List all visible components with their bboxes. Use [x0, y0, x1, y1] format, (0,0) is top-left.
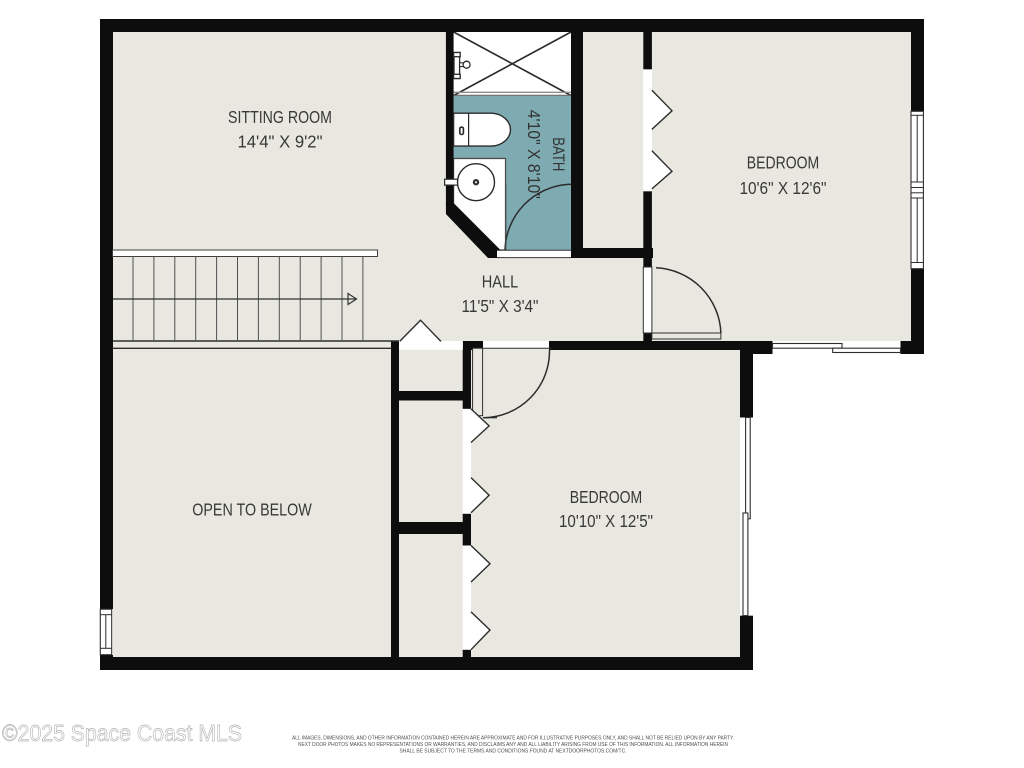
svg-text:SHALL BE SUBJECT TO THE TERMS: SHALL BE SUBJECT TO THE TERMS AND CONDIT… [400, 749, 627, 755]
svg-text:BATH: BATH [549, 137, 567, 171]
svg-text:©2025 Space Coast MLS: ©2025 Space Coast MLS [2, 720, 242, 746]
svg-text:NEXT DOOR PHOTOS MAKES NO REPR: NEXT DOOR PHOTOS MAKES NO REPRESENTATION… [298, 742, 728, 748]
svg-text:BEDROOM: BEDROOM [747, 152, 820, 172]
svg-text:OPEN TO BELOW: OPEN TO BELOW [192, 499, 312, 519]
svg-text:SITTING ROOM: SITTING ROOM [228, 107, 332, 127]
svg-text:HALL: HALL [482, 271, 519, 291]
svg-text:BEDROOM: BEDROOM [570, 487, 643, 507]
svg-text:14'4" X 9'2": 14'4" X 9'2" [238, 132, 323, 152]
svg-text:11'5" X 3'4": 11'5" X 3'4" [462, 296, 539, 316]
svg-text:ALL IMAGES, DIMENSIONS, AND OT: ALL IMAGES, DIMENSIONS, AND OTHER INFORM… [292, 736, 734, 742]
svg-text:10'6" X 12'6": 10'6" X 12'6" [740, 178, 827, 198]
svg-text:4'10" X 8'10": 4'10" X 8'10" [524, 110, 544, 199]
svg-text:10'10" X 12'5": 10'10" X 12'5" [559, 511, 653, 531]
